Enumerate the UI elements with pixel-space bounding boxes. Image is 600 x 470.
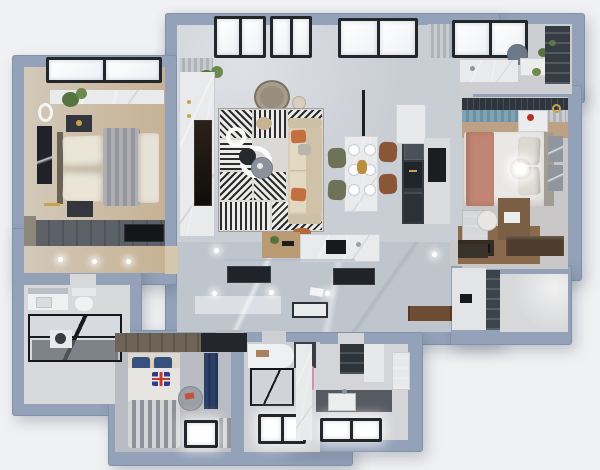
nightstand: [67, 201, 93, 217]
curved-vanity: [248, 344, 294, 368]
place-setting: [348, 144, 360, 156]
wet-floor: [32, 340, 118, 360]
master-skylight-window: [46, 57, 162, 83]
rug-patch: [220, 202, 270, 230]
intercom-panel: [460, 294, 472, 303]
master-bath-doorway: [70, 274, 96, 286]
plant-icon: [549, 40, 556, 46]
orange-pillow: [291, 130, 307, 144]
glass-floor-threshold: [292, 302, 328, 318]
laundry-column: [392, 352, 410, 390]
window-pane: [217, 19, 239, 55]
laptop-icon: [504, 212, 520, 223]
sofa-armrest: [288, 214, 322, 224]
faucet-icon: [342, 389, 347, 394]
orange-pillow: [291, 188, 307, 202]
bed-duvet: [138, 133, 159, 203]
window-pane: [323, 421, 350, 439]
wood-bar-counter: [262, 232, 300, 258]
skylight-window: [270, 16, 312, 58]
dark-storage-column: [486, 270, 500, 330]
framed-print: [548, 165, 563, 191]
kids-bay-window: [184, 420, 218, 448]
spotlight-icon: [92, 259, 97, 264]
amber-light-icon: [409, 170, 417, 172]
wall-niche: [227, 266, 271, 283]
floorplan-canvas: [0, 0, 600, 470]
pendant-light-icon: [510, 158, 532, 180]
downlight-icon: [432, 252, 437, 257]
window-pane: [49, 60, 103, 80]
rug-patch: [220, 172, 252, 200]
window-pane: [293, 19, 310, 55]
skylight-window: [214, 16, 266, 58]
window-pane: [455, 23, 489, 55]
dining-chair-brown: [378, 142, 397, 163]
floor-mat: [310, 287, 324, 297]
storage-room-floor: [500, 274, 568, 332]
dining-chair-brown: [378, 174, 397, 195]
master-bedroom-doorway: [165, 246, 178, 274]
gold-centerpiece-icon: [357, 160, 367, 174]
window-pane: [273, 19, 290, 55]
round-cushion: [256, 117, 272, 130]
kids-striped-duvet: [128, 400, 180, 448]
master-tv: [124, 224, 164, 242]
window-pane: [380, 21, 416, 55]
window-pane: [242, 19, 264, 55]
downlight-icon: [214, 248, 219, 253]
downlight-icon: [325, 291, 330, 296]
sofa-backrest: [306, 128, 322, 214]
toilet-bowl: [75, 297, 93, 311]
bed-pillow: [62, 169, 105, 201]
entry-mat: [458, 244, 488, 258]
shower-frame-bar: [30, 336, 120, 338]
window-pane: [187, 423, 215, 445]
gold-ring-light-icon: [552, 104, 561, 113]
place-setting: [348, 184, 360, 196]
window-pane: [106, 60, 160, 80]
kids-wardrobe-dark: [201, 333, 247, 352]
desk-chair: [477, 210, 498, 231]
framed-print: [548, 136, 563, 162]
cup-icon: [257, 163, 263, 169]
sofa-armrest: [288, 118, 322, 128]
shower-column: [364, 344, 384, 382]
union-jack-pillow: [152, 372, 170, 386]
faucet-icon: [356, 242, 361, 247]
ring-coffee-table-small: [226, 127, 246, 147]
gray-pillow: [298, 144, 311, 155]
toilet-tank: [72, 288, 96, 296]
nightstand: [518, 110, 548, 132]
plant-icon: [270, 236, 279, 244]
downlight-icon: [269, 290, 274, 295]
window-pane: [261, 417, 281, 441]
round-mirror: [38, 103, 53, 122]
sink-icon: [328, 393, 356, 411]
wall-niche: [333, 268, 375, 285]
red-decor-icon: [527, 114, 534, 121]
navy-curtain: [204, 353, 218, 409]
dresser: [24, 216, 36, 246]
bed-pillow: [62, 135, 105, 168]
bath-bay-window: [320, 418, 382, 442]
wood-tray-icon: [256, 350, 269, 357]
spotlight-icon: [126, 259, 131, 264]
light-floor-band: [195, 296, 281, 314]
glass-shower: [250, 368, 294, 406]
white-wall-cabinet: [396, 104, 426, 144]
cooktop: [326, 240, 346, 254]
kids-wardrobe: [115, 333, 201, 352]
coffee-machine-niche: [404, 162, 422, 188]
gold-sconce-icon: [187, 114, 191, 118]
bed-pleated-throw: [103, 128, 140, 206]
dark-sideboard: [506, 236, 564, 256]
living-tv: [194, 120, 212, 206]
faucet-icon: [470, 66, 475, 71]
plant-icon: [532, 68, 541, 76]
vanity-mirror: [28, 288, 68, 294]
skylight-window: [338, 18, 418, 58]
bar-appliance-icon: [282, 241, 294, 246]
built-in-oven: [404, 192, 422, 222]
window-pane: [341, 21, 377, 55]
balcony-tall-cabinet: [545, 26, 570, 84]
gold-wall-lamp-icon: [44, 203, 60, 206]
bath-tall-cabinet: [340, 344, 364, 374]
dining-chair-olive: [327, 180, 346, 201]
washer-door-icon: [55, 333, 66, 344]
window-pane: [353, 421, 380, 439]
marble-feature-wall: [296, 344, 312, 440]
plant-icon: [76, 88, 87, 99]
black-appliance-deck: [428, 148, 446, 182]
sink-icon: [36, 297, 52, 308]
salmon-throw: [466, 132, 494, 206]
place-setting: [364, 184, 376, 196]
table-lamp-icon: [76, 120, 82, 126]
wall-art: [37, 126, 52, 184]
downlight-icon: [212, 291, 217, 296]
gold-sconce-icon: [187, 100, 191, 104]
shower-bath-doorway: [262, 331, 286, 344]
dining-chair-olive: [327, 148, 346, 169]
glass-screen: [225, 259, 355, 261]
runner-rug: [408, 306, 452, 321]
spotlight-icon: [58, 257, 63, 262]
place-setting: [364, 144, 376, 156]
balcony-counter: [460, 60, 518, 82]
